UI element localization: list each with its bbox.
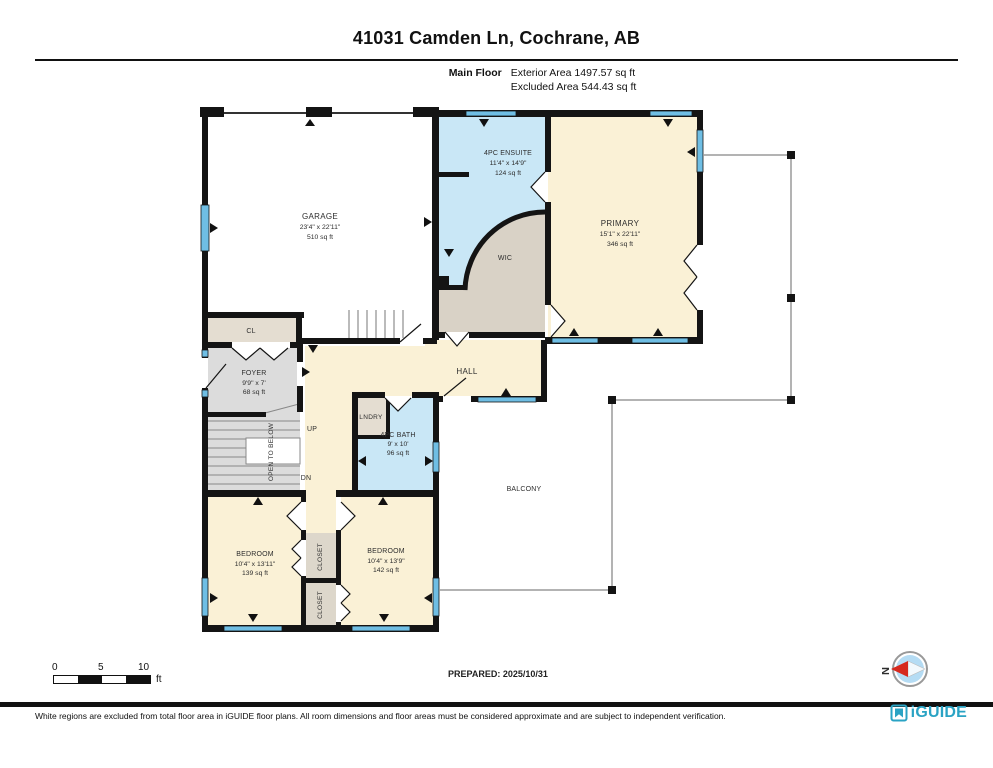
room-dims-bath: 9' x 10': [387, 441, 408, 448]
compass-north-label: N: [882, 667, 892, 675]
room-label-bath: 4PC BATH: [380, 432, 415, 439]
room-fills: [208, 116, 697, 625]
room-dims-bedroom-left: 10'4" x 13'11": [235, 561, 276, 568]
room-label-balcony: BALCONY: [507, 486, 542, 493]
compass-icon: N: [882, 646, 938, 694]
room-dims-bedroom-right: 10'4" x 13'9": [367, 558, 405, 565]
room-label-bedroom-right: BEDROOM: [367, 548, 405, 555]
scale-bar: 0 5 10 ft: [50, 662, 180, 690]
room-label-ensuite: 4PC ENSUITE: [484, 150, 532, 157]
scale-tick-5: 5: [98, 662, 104, 673]
room-area-garage: 510 sq ft: [307, 234, 333, 241]
room-label-bedroom-left: BEDROOM: [236, 551, 274, 558]
room-dims-primary: 15'1" x 22'11": [600, 231, 641, 238]
room-area-foyer: 68 sq ft: [243, 389, 265, 396]
scale-tick-10: 10: [138, 662, 149, 673]
stairs-up-label: UP: [307, 426, 317, 433]
room-dims-foyer: 9'9" x 7': [242, 380, 266, 387]
room-area-bath: 96 sq ft: [387, 450, 409, 457]
room-dims-garage: 23'4" x 22'11": [300, 224, 341, 231]
room-label-wic: WIC: [498, 255, 512, 262]
iguide-logo: iGUIDE: [890, 704, 967, 722]
room-area-ensuite: 124 sq ft: [495, 170, 521, 177]
closet-upper-label: CLOSET: [317, 543, 324, 571]
floor-plan: GARAGE 23'4" x 22'11" 510 sq ft 4PC ENSU…: [0, 0, 993, 768]
prepared-date: PREPARED: 2025/10/31: [448, 669, 548, 679]
room-label-laundry: LNDRY: [359, 414, 383, 421]
stairs-down-label: DN: [301, 475, 312, 482]
room-label-cl: CL: [246, 328, 255, 335]
room-area-bedroom-left: 139 sq ft: [242, 570, 268, 577]
iguide-logo-text: iGUIDE: [911, 704, 967, 722]
scale-bar-segments: [53, 675, 151, 684]
scale-unit: ft: [156, 674, 162, 685]
room-label-foyer: FOYER: [241, 370, 266, 377]
room-area-bedroom-right: 142 sq ft: [373, 567, 399, 574]
room-label-hall: HALL: [456, 367, 477, 376]
room-label-garage: GARAGE: [302, 212, 338, 221]
iguide-logo-icon: [890, 704, 908, 722]
garage-steps: [349, 310, 403, 338]
footer-disclaimer: White regions are excluded from total fl…: [35, 711, 815, 721]
scale-tick-0: 0: [52, 662, 58, 673]
room-area-primary: 346 sq ft: [607, 241, 633, 248]
room-label-primary: PRIMARY: [601, 219, 640, 228]
closet-lower-label: CLOSET: [317, 591, 324, 619]
open-to-below-label: OPEN TO BELOW: [268, 422, 275, 481]
footer-divider: [0, 702, 993, 707]
room-dims-ensuite: 11'4" x 14'9": [490, 160, 527, 167]
